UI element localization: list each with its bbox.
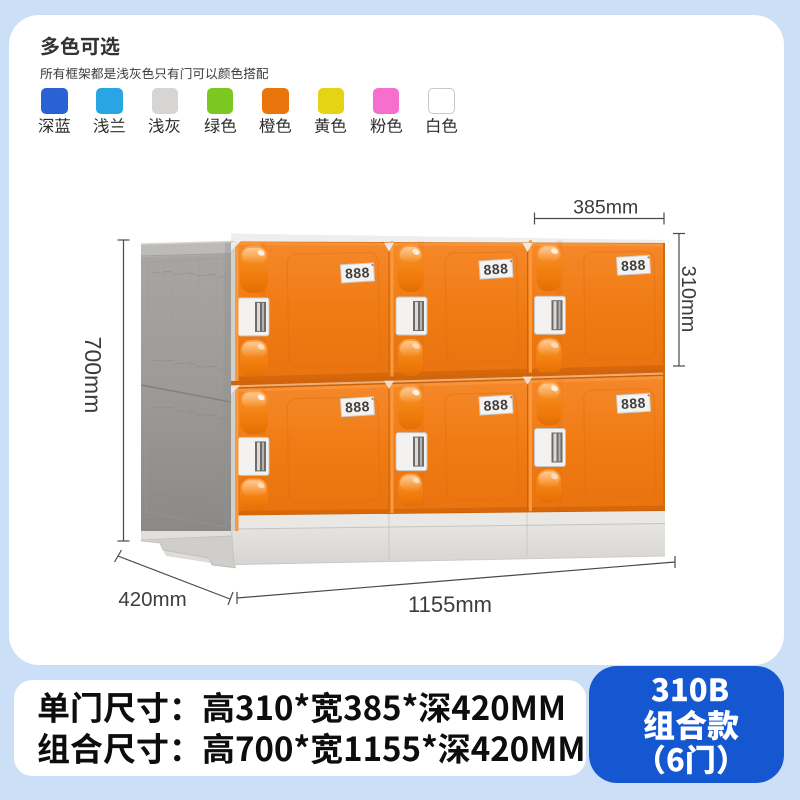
svg-text:888: 888	[345, 398, 371, 415]
svg-text:385mm: 385mm	[573, 197, 638, 219]
svg-text:888: 888	[345, 264, 371, 281]
svg-text:888: 888	[621, 257, 647, 274]
svg-text:1155mm: 1155mm	[408, 592, 492, 617]
svg-text:310mm: 310mm	[677, 266, 699, 333]
svg-text:888: 888	[621, 395, 647, 412]
svg-text:888: 888	[483, 396, 509, 413]
svg-text:420mm: 420mm	[118, 588, 186, 611]
svg-text:888: 888	[483, 260, 509, 277]
svg-text:700mm: 700mm	[80, 337, 106, 414]
